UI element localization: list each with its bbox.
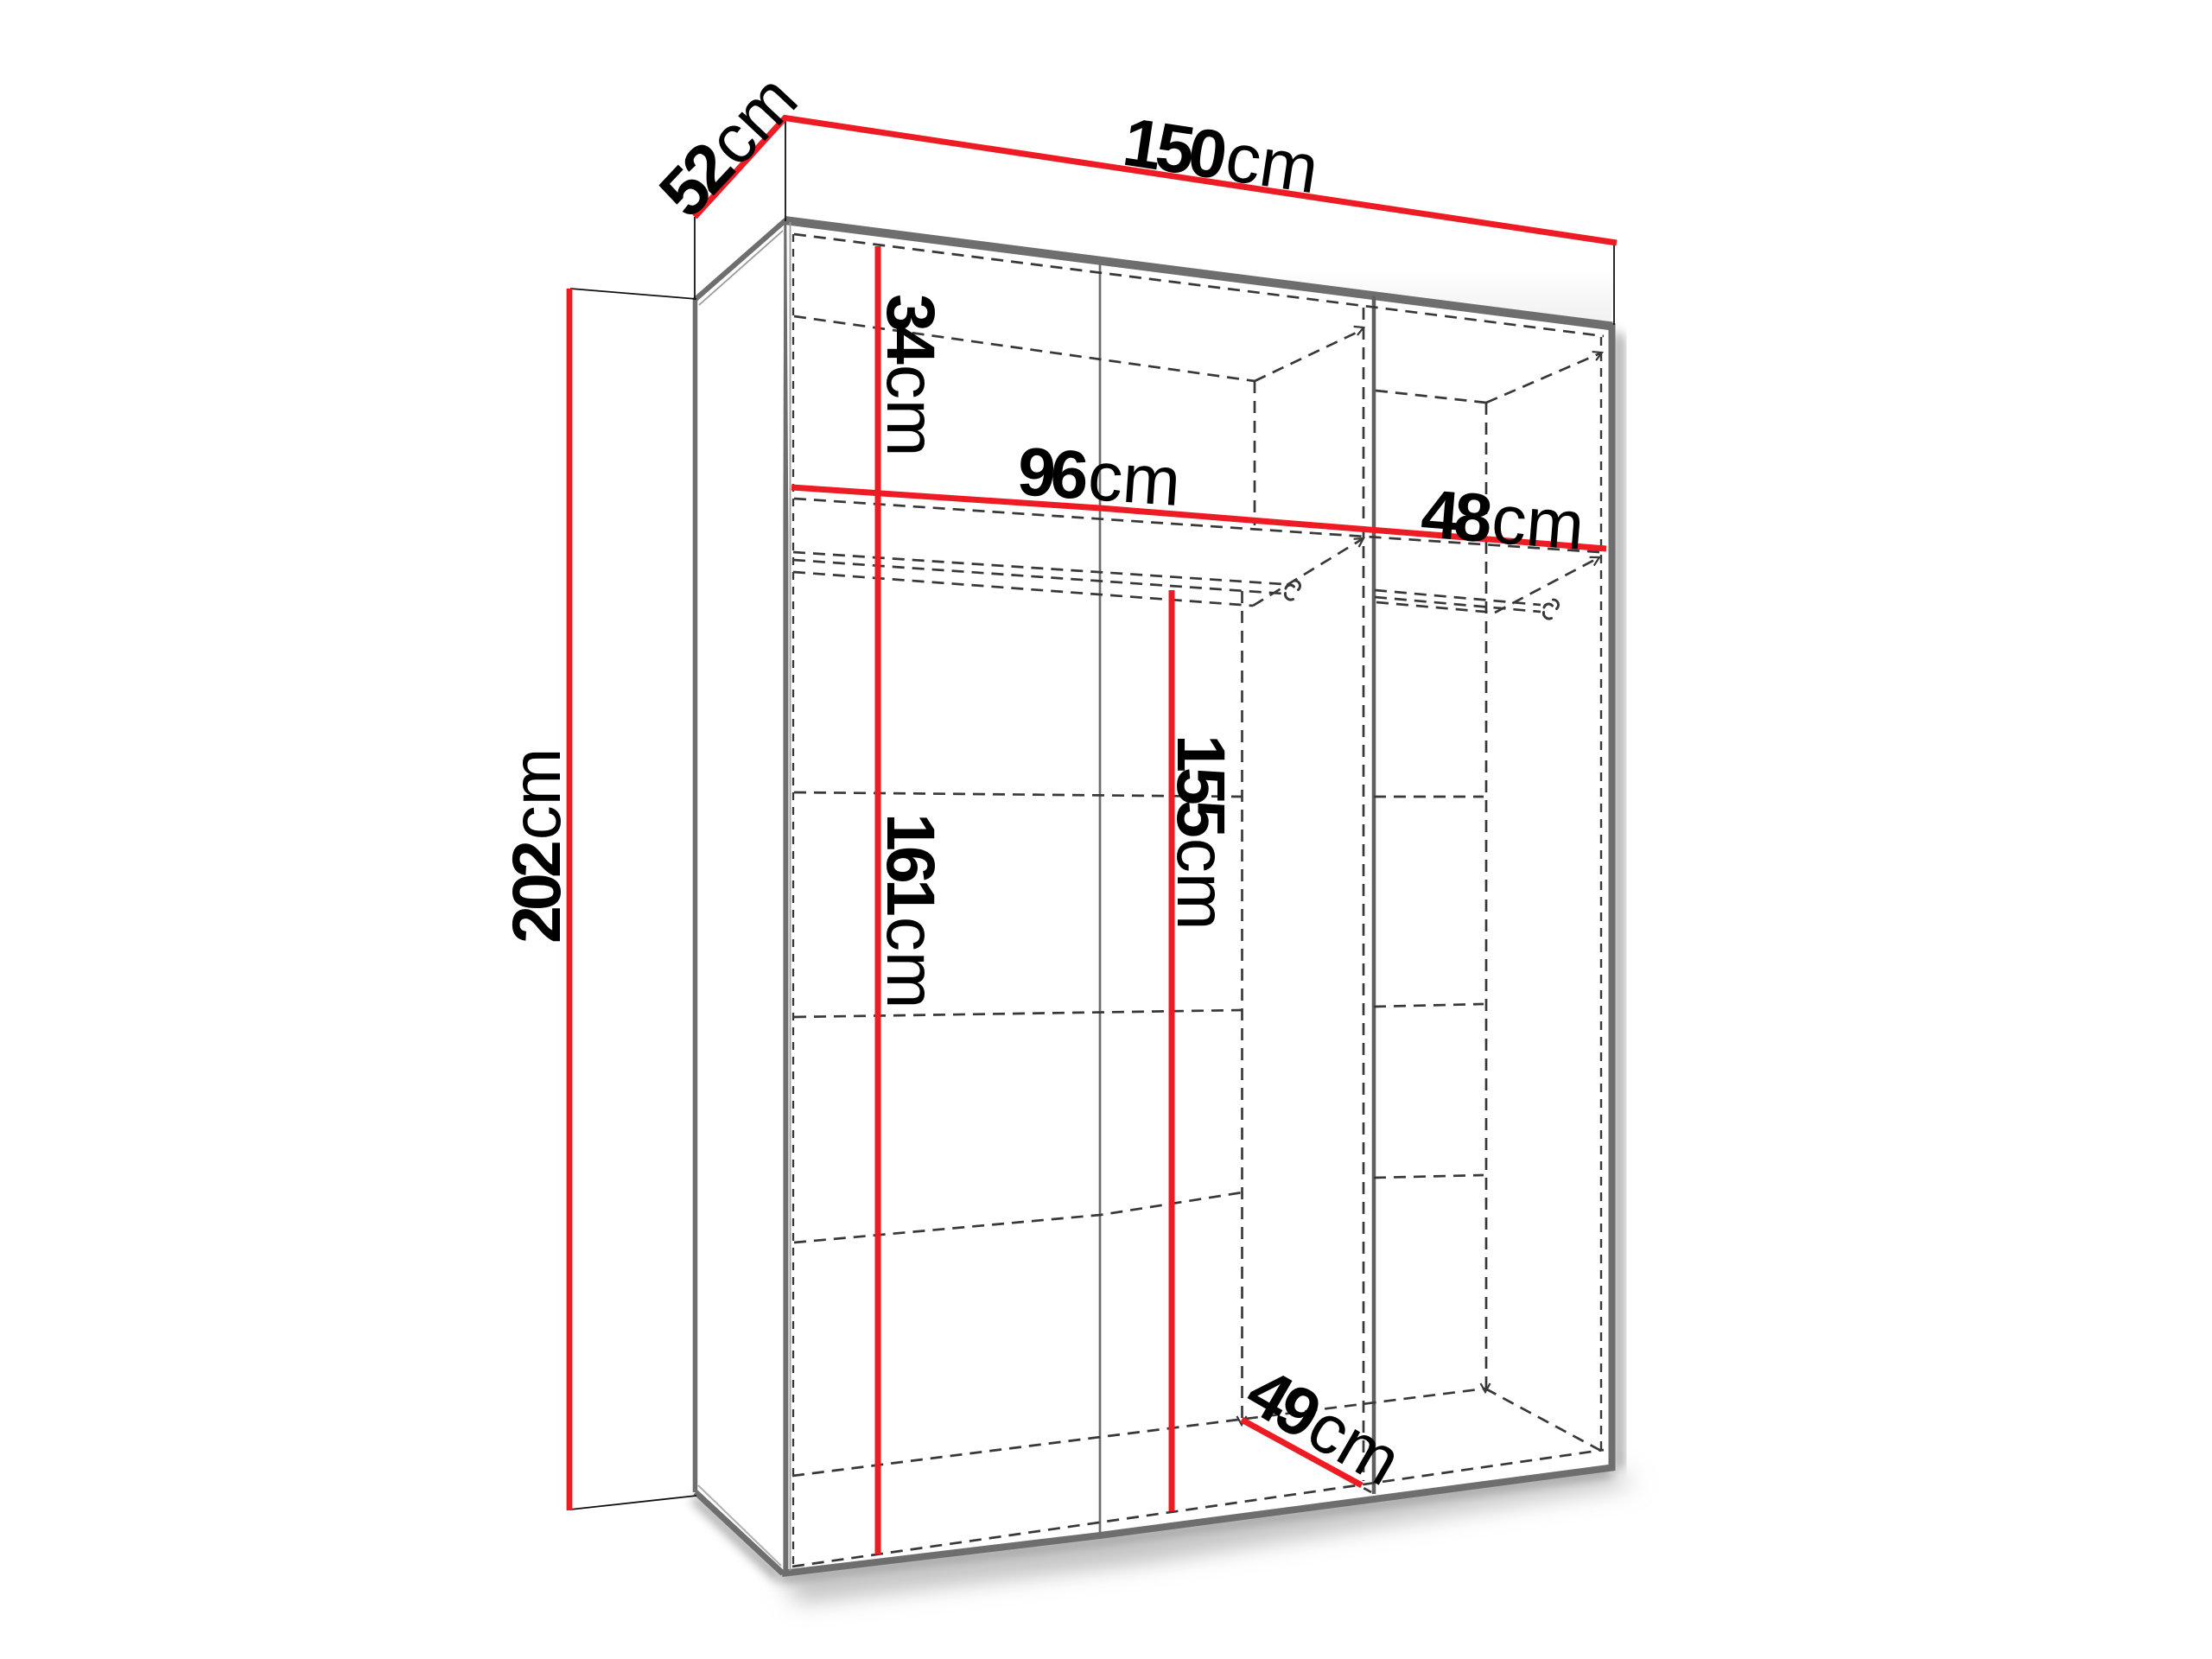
svg-text:48cm: 48cm bbox=[1419, 474, 1587, 564]
svg-text:155cm: 155cm bbox=[1163, 734, 1240, 930]
svg-text:34cm: 34cm bbox=[873, 294, 950, 457]
svg-text:161cm: 161cm bbox=[873, 813, 950, 1008]
svg-text:96cm: 96cm bbox=[1015, 432, 1183, 520]
svg-text:202cm: 202cm bbox=[498, 748, 575, 944]
